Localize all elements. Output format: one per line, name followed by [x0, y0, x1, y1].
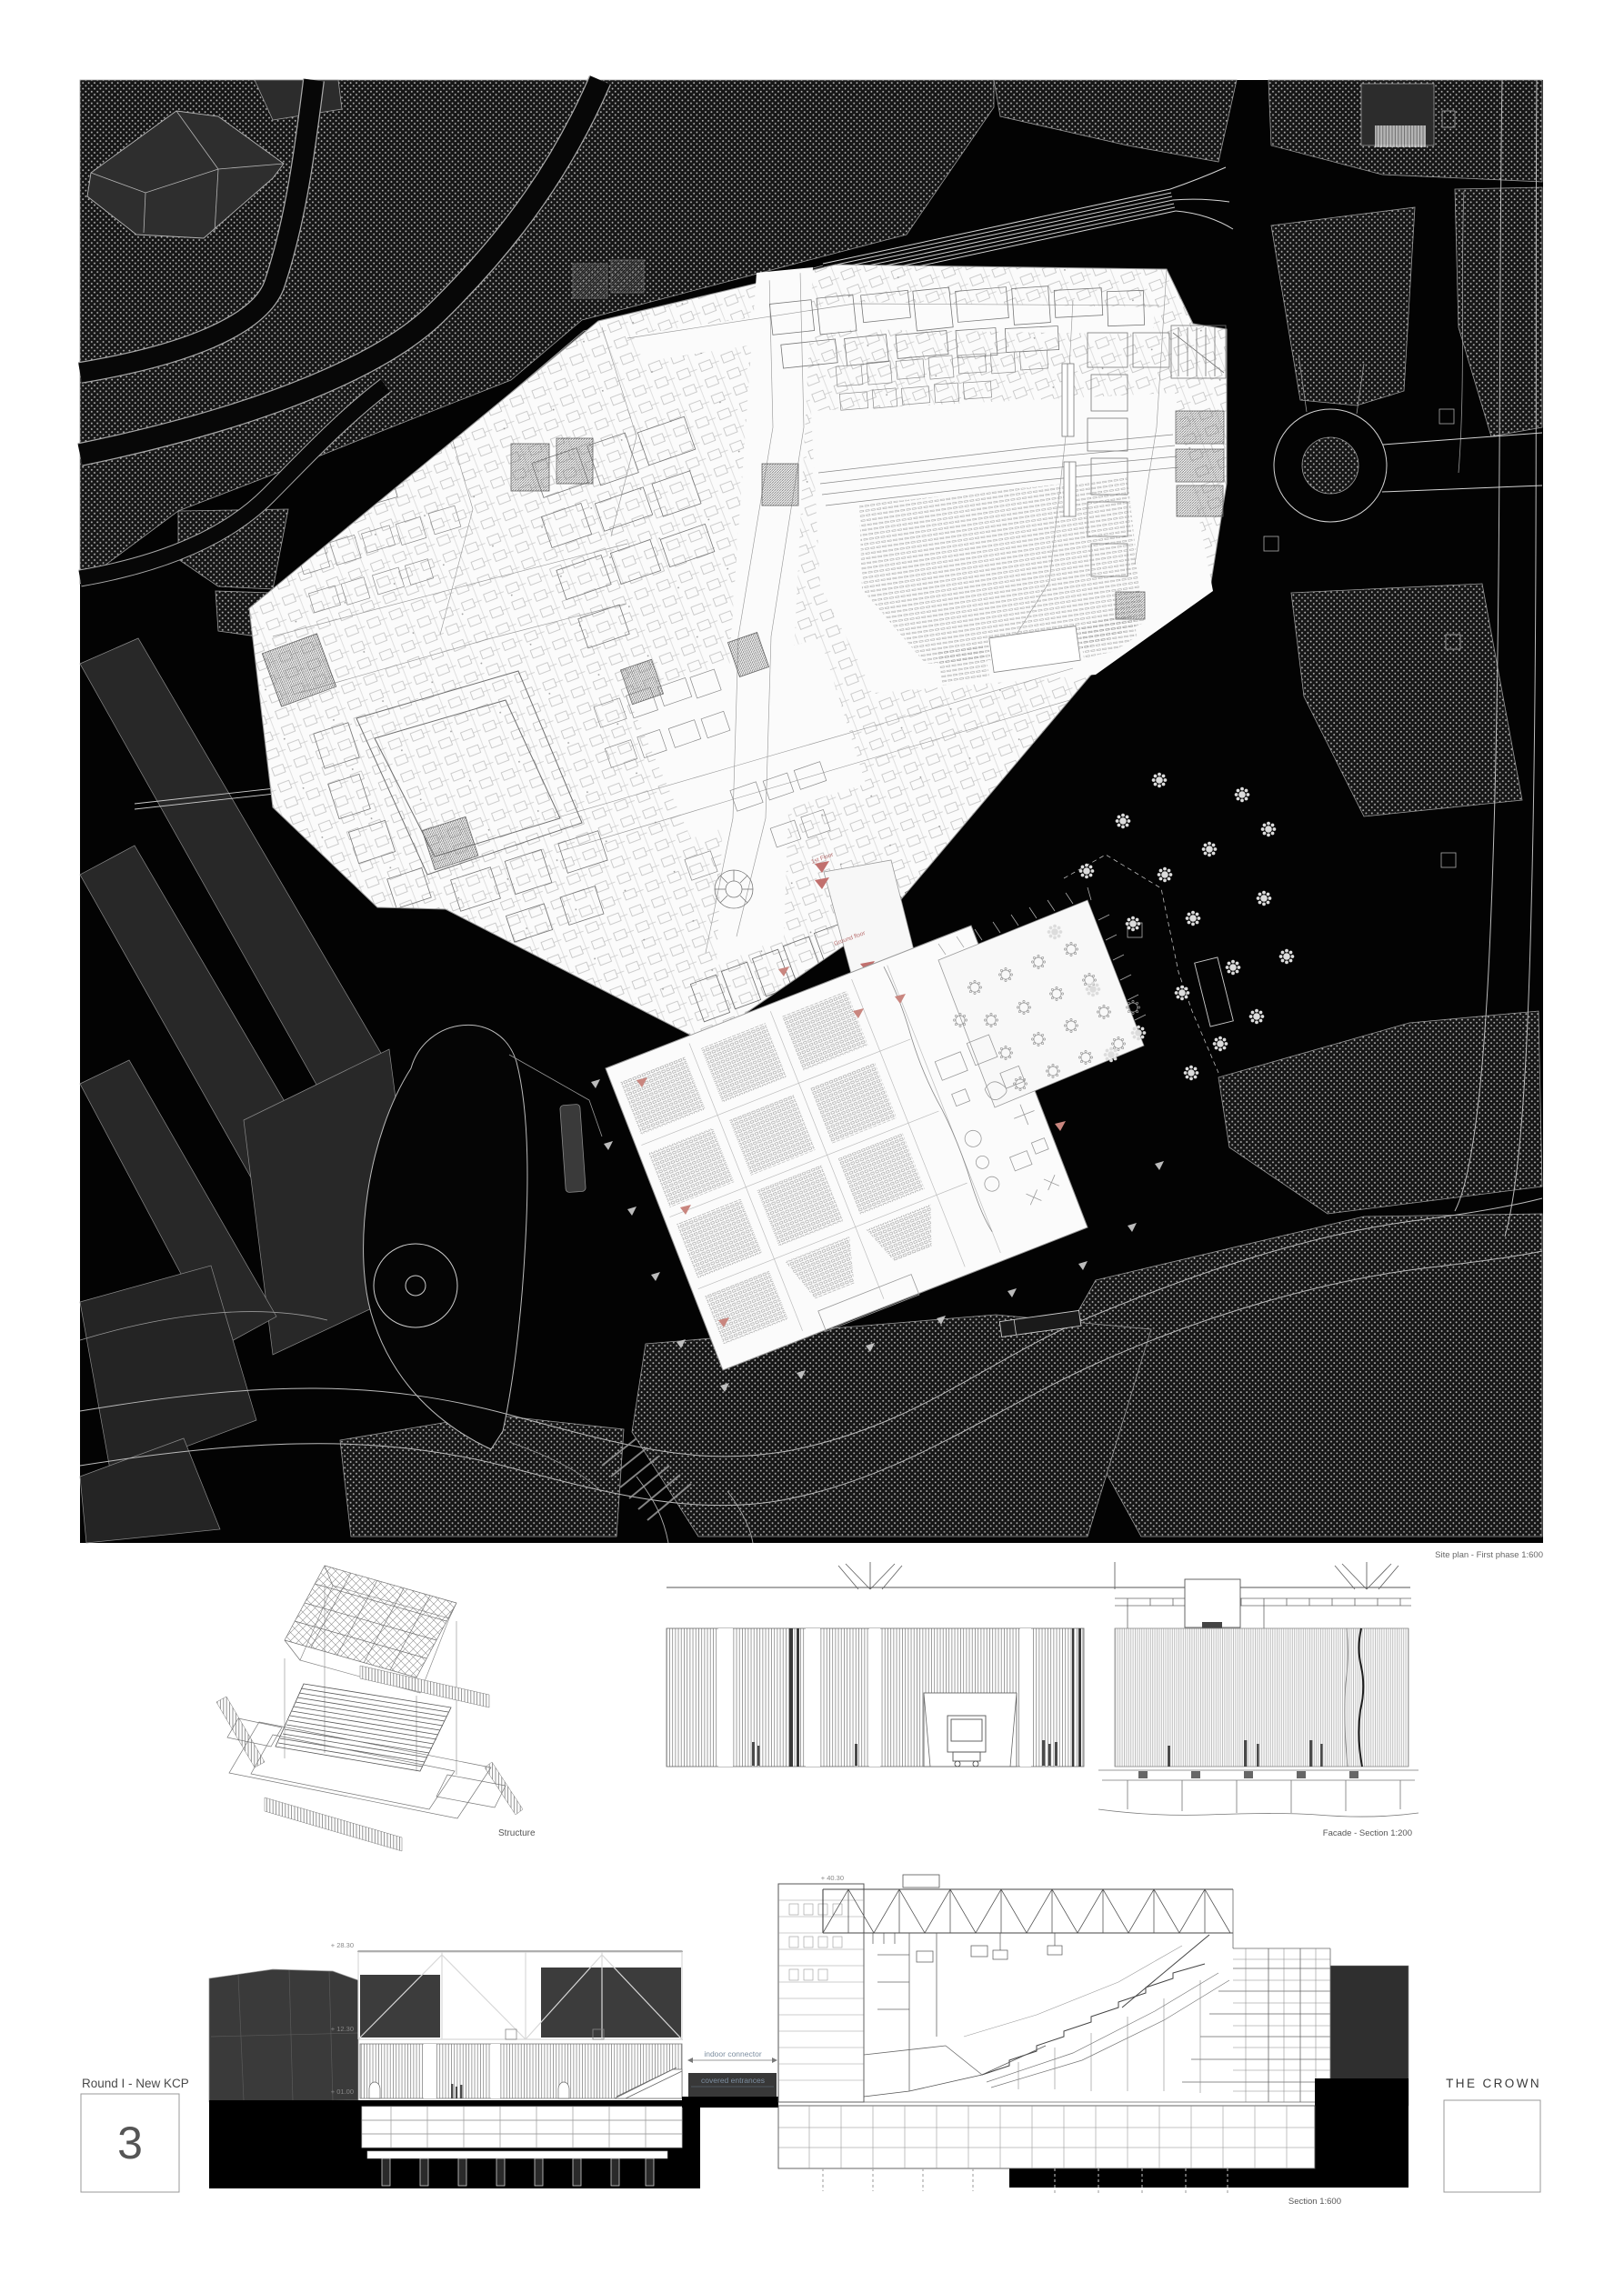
svg-text:+ 01.00: + 01.00	[331, 2088, 354, 2096]
svg-text:Section 1:600: Section 1:600	[1288, 2197, 1341, 2207]
svg-text:covered entrances: covered entrances	[701, 2076, 765, 2085]
svg-text:+ 40.30: + 40.30	[821, 1874, 844, 1882]
svg-text:Structure: Structure	[498, 1828, 536, 1838]
svg-text:Round I - New KCP: Round I - New KCP	[82, 2077, 189, 2090]
svg-text:+ 12.30: + 12.30	[331, 2025, 354, 2033]
svg-text:indoor connector: indoor connector	[704, 2049, 761, 2058]
svg-text:Facade - Section 1:200: Facade - Section 1:200	[1323, 1828, 1412, 1838]
svg-text:3: 3	[117, 2118, 143, 2168]
svg-text:+ 28.30: + 28.30	[331, 1941, 354, 1949]
svg-text:THE CROWN: THE CROWN	[1446, 2077, 1541, 2090]
svg-text:Site plan - First phase 1:600: Site plan - First phase 1:600	[1435, 1550, 1543, 1560]
